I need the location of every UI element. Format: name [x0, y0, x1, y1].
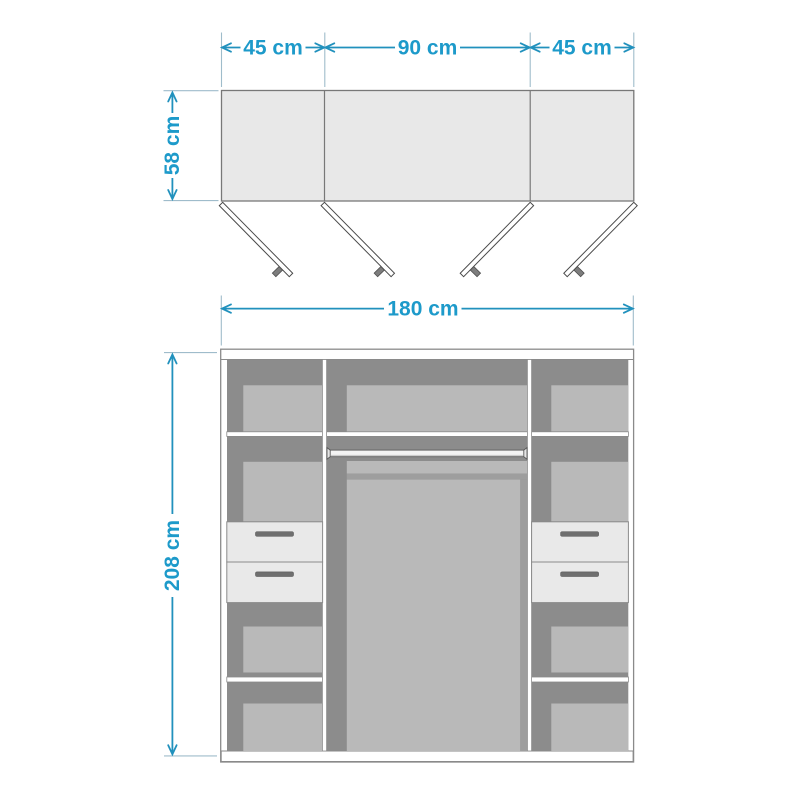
svg-text:180 cm: 180 cm [387, 298, 458, 321]
svg-text:90 cm: 90 cm [398, 36, 458, 59]
svg-text:45 cm: 45 cm [552, 36, 612, 59]
svg-text:45 cm: 45 cm [243, 36, 303, 59]
svg-text:58 cm: 58 cm [161, 116, 184, 176]
svg-text:208 cm: 208 cm [161, 520, 184, 591]
